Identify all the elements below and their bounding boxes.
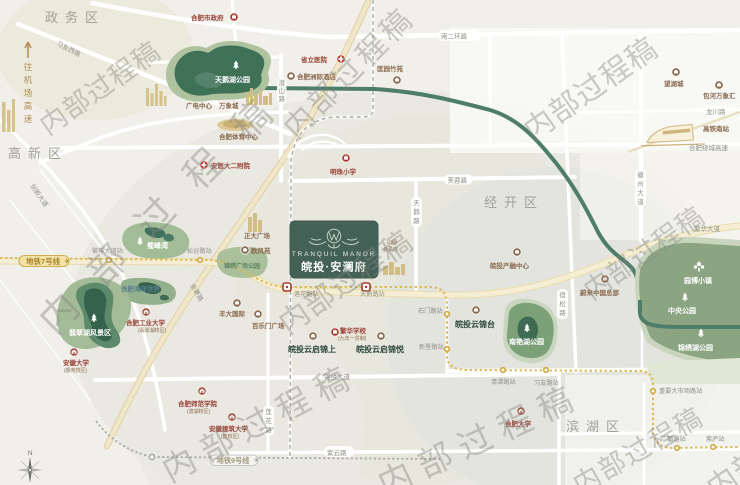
svg-text:天鹅路站: 天鹅路站 <box>360 290 385 298</box>
svg-text:紫庐站: 紫庐站 <box>706 435 725 443</box>
svg-text:合肥市政府: 合肥市政府 <box>190 13 224 22</box>
svg-text:锦绣湖公园: 锦绣湖公园 <box>678 343 713 352</box>
svg-text:皖投产融中心: 皖投产融中心 <box>490 261 530 270</box>
svg-text:安徽大学: 安徽大学 <box>63 358 90 367</box>
svg-text:合肥师范学院: 合肥师范学院 <box>177 399 218 408</box>
svg-text:(磬苑校区): (磬苑校区) <box>64 367 88 374</box>
svg-text:重要大市场路站: 重要大市场路站 <box>659 387 702 395</box>
svg-text:高铁南站: 高铁南站 <box>703 124 730 133</box>
svg-text:高新区: 高新区 <box>8 146 68 161</box>
svg-text:往机场高速: 往机场高速 <box>24 62 33 124</box>
svg-text:石门路站: 石门路站 <box>418 307 443 315</box>
svg-text:皖投云锦台: 皖投云锦台 <box>455 319 495 329</box>
svg-text:省立医院: 省立医院 <box>300 55 328 64</box>
svg-text:天鹅湖公园: 天鹅湖公园 <box>215 75 250 84</box>
svg-text:翡翠湖风景区: 翡翠湖风景区 <box>69 328 111 337</box>
svg-text:合肥绕城高速: 合肥绕城高速 <box>689 143 729 152</box>
svg-text:包河万象汇: 包河万象汇 <box>703 91 736 100</box>
svg-text:正大广场: 正大广场 <box>244 231 271 240</box>
svg-text:(滨湖校区): (滨湖校区) <box>187 408 211 415</box>
svg-text:园博小镇: 园博小镇 <box>684 276 712 285</box>
svg-text:(九年一贯制): (九年一贯制) <box>338 335 367 342</box>
svg-text:繁华学校: 繁华学校 <box>340 326 367 335</box>
svg-text:南二环路: 南二环路 <box>441 32 468 41</box>
svg-text:欧风苑: 欧风苑 <box>251 246 271 255</box>
svg-text:望湖城: 望湖城 <box>664 79 684 88</box>
svg-text:天鹅路: 天鹅路 <box>413 199 420 225</box>
svg-text:合肥海洋世界: 合肥海洋世界 <box>120 284 161 293</box>
svg-text:政务区: 政务区 <box>45 10 105 25</box>
svg-text:中央公园: 中央公园 <box>668 306 696 315</box>
svg-text:宿松路: 宿松路 <box>559 290 566 317</box>
svg-text:松谷路站: 松谷路站 <box>187 247 212 255</box>
svg-text:清潭路站: 清潭路站 <box>491 378 516 386</box>
svg-text:经开区: 经开区 <box>484 195 544 210</box>
svg-text:新垦路站: 新垦路站 <box>419 343 444 351</box>
svg-text:南艳湖公园: 南艳湖公园 <box>509 337 544 346</box>
svg-text:地铁7号线: 地铁7号线 <box>26 256 61 266</box>
svg-text:(翡翠湖校区): (翡翠湖校区) <box>138 327 167 334</box>
svg-text:广电中心: 广电中心 <box>186 101 213 110</box>
svg-text:明珠小学: 明珠小学 <box>330 167 357 176</box>
svg-text:龙川路: 龙川路 <box>706 107 726 116</box>
svg-text:合肥工业大学: 合肥工业大学 <box>125 318 166 327</box>
svg-text:匡园竹苑: 匡园竹苑 <box>377 64 404 73</box>
svg-text:锦绣广场公园: 锦绣广场公园 <box>224 262 260 270</box>
svg-text:芙蓉路: 芙蓉路 <box>448 176 468 185</box>
svg-text:紫云路: 紫云路 <box>327 448 347 457</box>
svg-text:N: N <box>28 450 33 457</box>
svg-text:滨湖区: 滨湖区 <box>566 419 626 434</box>
svg-text:皖投云启锦悦: 皖投云启锦悦 <box>356 344 404 354</box>
svg-text:皖投云启锦上: 皖投云启锦上 <box>288 344 336 354</box>
svg-text:丰大国际: 丰大国际 <box>219 309 246 318</box>
